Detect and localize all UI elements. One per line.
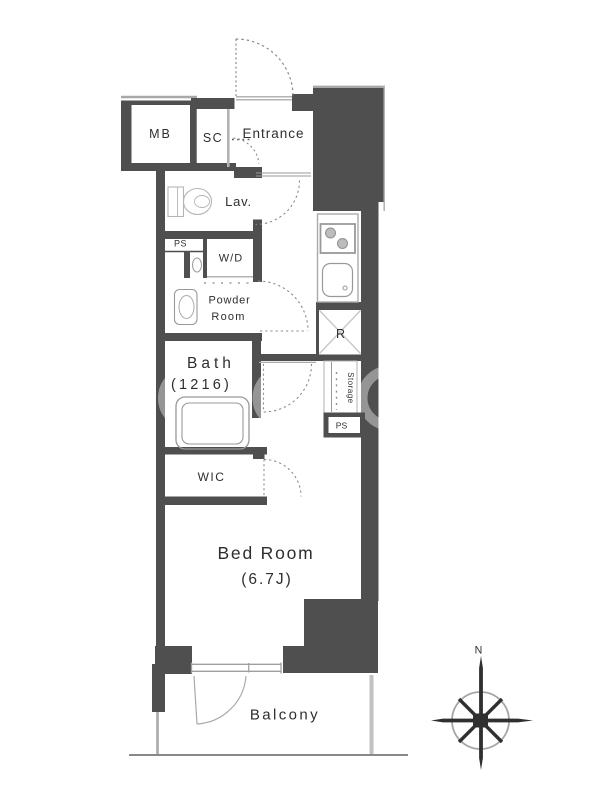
svg-text:Bath: Bath (187, 355, 235, 372)
svg-text:MB: MB (149, 127, 172, 141)
svg-text:Balcony: Balcony (250, 707, 320, 724)
svg-text:R: R (336, 327, 345, 341)
svg-text:Bed Room: Bed Room (217, 543, 314, 563)
svg-text:Storage: Storage (346, 372, 355, 404)
svg-text:Room: Room (211, 311, 245, 323)
svg-text:SC: SC (203, 131, 223, 145)
svg-text:Entrance: Entrance (242, 126, 304, 141)
svg-text:Powder: Powder (208, 294, 250, 306)
svg-text:WIC: WIC (198, 470, 226, 484)
svg-text:PS: PS (174, 239, 187, 249)
svg-text:PS: PS (336, 421, 348, 431)
svg-text:(6.7J): (6.7J) (241, 571, 293, 588)
svg-text:Lav.: Lav. (225, 194, 252, 209)
svg-text:(1216): (1216) (171, 377, 232, 393)
svg-text:N: N (475, 645, 483, 657)
svg-text:W/D: W/D (219, 252, 243, 264)
